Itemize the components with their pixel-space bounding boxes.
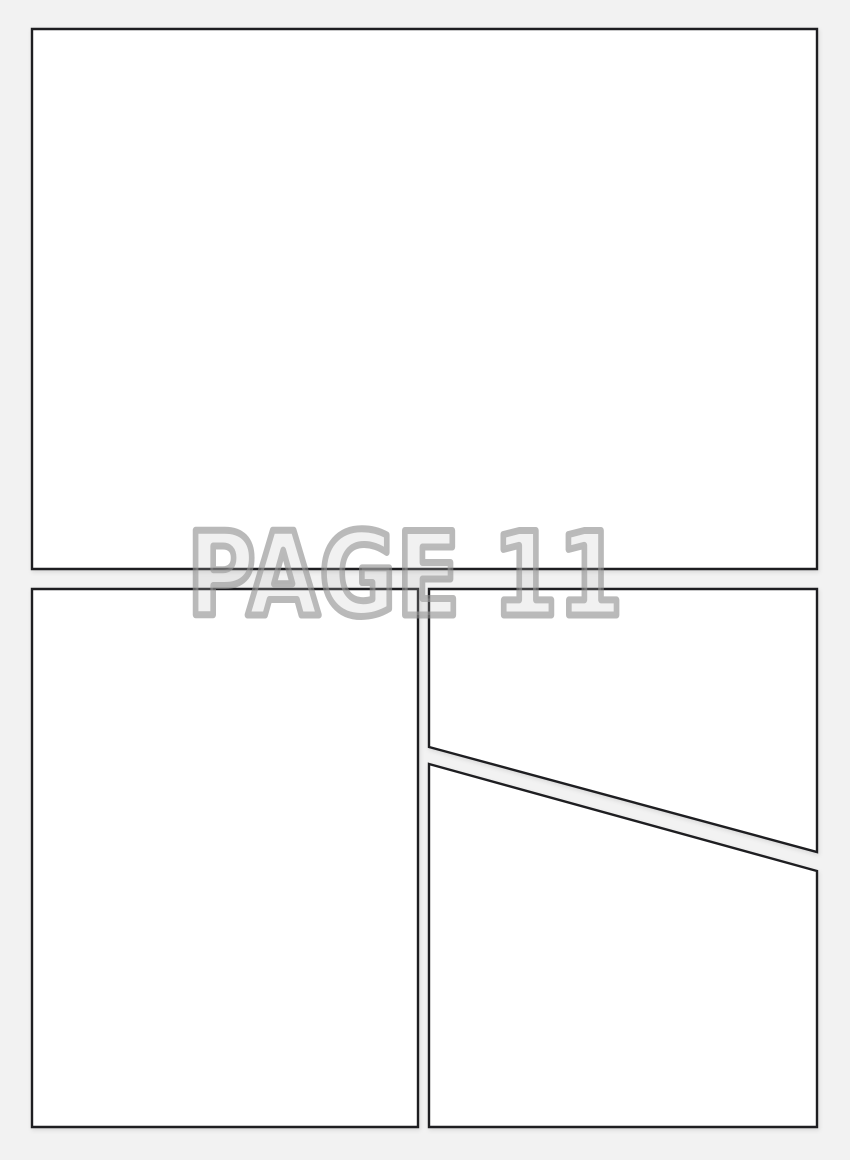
panel-bottom-left: [32, 589, 418, 1127]
page-svg: PAGE 11: [0, 0, 850, 1160]
panel-top: [32, 29, 817, 569]
comic-page: PAGE 11: [0, 0, 850, 1160]
page-label: PAGE 11: [187, 508, 623, 643]
